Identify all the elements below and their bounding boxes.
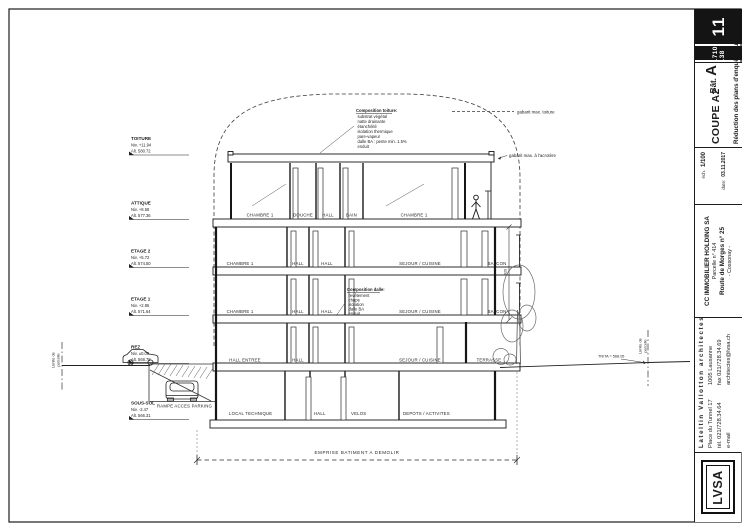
level-niv: Niv. +11.94 (131, 143, 152, 148)
room-label: HALL (292, 358, 304, 363)
room-label: CHAMBRE 1 (247, 213, 274, 218)
level-name: SOUS-SOL (131, 401, 155, 406)
parcel-limit-label-left: Limite de parcelle (52, 352, 61, 367)
emprise-label: EMPRISE BATIMENT A DEMOLIR (315, 450, 400, 455)
gabarit-toiture-label: gabarit max. toiture (517, 110, 555, 115)
height-dimension-label: 920 (504, 269, 508, 275)
scale-date-section: éch. 1/100 date: 03.11.2017 (695, 147, 742, 204)
room-label: BALCON (488, 309, 507, 314)
room-label: SEJOUR / CUISINE (399, 358, 441, 363)
limite-text: parcelle (57, 353, 61, 366)
level-alt: Alt. 566.31 (131, 413, 151, 418)
level-labels: TOITURE Niv. +11.94 Alt. 580.72 ATTIQUE … (131, 136, 155, 418)
room-label: HALL (321, 309, 333, 314)
architect-address: Place du Tunnel 17 (707, 385, 716, 448)
room-label: VELOS (351, 411, 366, 416)
composition-dalle: Composition dalle: revêtement chape isol… (336, 287, 385, 316)
level-name: ETAGE 2 (131, 249, 151, 254)
composition-toiture: Composition toiture: substrat végétal na… (320, 108, 407, 153)
parcel-number: Parcelle n° 414 (712, 243, 718, 280)
basement-room-labels: LOCAL TECHNIQUE HALL VELOS DEPOTS / ACTI… (157, 404, 450, 417)
date-label: date: (721, 180, 726, 190)
room-label: BALCON (488, 261, 507, 266)
room-label: CHAMBRE 1 (401, 213, 428, 218)
room-label: HALL (292, 309, 304, 314)
ramp-label: RAMPE ACCES PARKING (157, 404, 213, 409)
limite-text: parcelle (644, 339, 648, 352)
drawing-title: COUPE A2 (710, 88, 722, 144)
tree (501, 265, 536, 364)
architect-email: architectes@lvsa.ch (725, 322, 734, 385)
lvsa-logo: LVSA (701, 461, 735, 515)
level-alt: Alt. 568.78 (131, 357, 151, 362)
level-niv: Niv. +8.58 (131, 207, 150, 212)
level-alt: Alt. 580.72 (131, 149, 151, 154)
level-name: ETAGE 1 (131, 297, 151, 302)
room-label: SEJOUR / CUISINE (399, 261, 441, 266)
level-niv: Niv. +5.72 (131, 255, 150, 260)
level-name: ATTIQUE (131, 201, 151, 206)
level-niv: Niv. -2.47 (131, 407, 149, 412)
title-block: LVSA Lateltin Vallotton architectes SA P… (694, 9, 741, 522)
composition-dalle-title: Composition dalle: (347, 287, 385, 292)
date-value: 03.11.2017 (721, 152, 727, 177)
annotation-line: enduit (358, 144, 370, 149)
architect-email-label: e-mail (725, 385, 734, 448)
room-label: HALL ENTREE (229, 358, 260, 363)
job-number: 1710-138 (712, 44, 726, 63)
section-drawing: 920 EMPRISE BATIMENT A DEMOLIR TOITURE N… (0, 0, 750, 531)
level-alt: Alt. 577.36 (131, 213, 151, 218)
drawing-title-section: COUPE A2 Réduction des plans d'enquête d… (695, 62, 742, 147)
human-figure (472, 195, 481, 219)
building-letter: A (703, 65, 720, 76)
ramp-hatch (152, 364, 213, 379)
project-street: Route de Morges n° 25 (719, 227, 726, 295)
gabarit-acrotere-leader (498, 156, 507, 160)
room-label: SEJOUR / CUISINE (399, 309, 441, 314)
sheet-border (9, 9, 741, 522)
room-label: HALL (322, 213, 334, 218)
client-section: CC IMMOBILIER HOLDING SA Parcelle n° 414… (695, 204, 742, 317)
composition-toiture-title: Composition toiture: (356, 108, 397, 113)
terrain-level-label: TN/TA = 568.05 (598, 355, 624, 359)
attic-diagonals (252, 184, 424, 206)
project-city: - Cossonay - (727, 246, 733, 277)
level-niv: Niv. ±0.00 (131, 351, 150, 356)
room-label: CHAMBRE 1 (227, 261, 254, 266)
room-label: DEPOTS / ACTIVITES (403, 411, 450, 416)
sheet-number-box: 11 (695, 9, 742, 44)
level-niv: Niv. +2.86 (131, 303, 150, 308)
scale-label: éch. (701, 170, 706, 179)
level-markers (129, 152, 189, 420)
room-label: CHAMBRE 1 (227, 309, 254, 314)
client-name: CC IMMOBILIER HOLDING SA (704, 216, 711, 306)
car-parking (166, 381, 198, 401)
job-number-box: 1710-138 (695, 46, 742, 60)
room-label: HALL (321, 261, 333, 266)
level-alt: Alt. 571.64 (131, 309, 151, 314)
door-window-frames (291, 168, 488, 420)
level-name: REZ (131, 345, 140, 350)
architect-name: Lateltin Vallotton architectes SA (698, 322, 705, 448)
room-label: HALL (314, 411, 326, 416)
architect-fax: fax 021/728.34.69 (716, 322, 725, 385)
room-label: LOCAL TECHNIQUE (229, 411, 272, 416)
annotation-line: enduit (349, 311, 361, 316)
architect-city: 1005 Lausanne (707, 322, 716, 385)
building-label: Bât. A (703, 65, 720, 93)
logo-section: LVSA (695, 452, 741, 522)
level-alt: Alt. 574.50 (131, 261, 151, 266)
parcel-limit-label-right: Limite de parcelle (639, 338, 648, 353)
level-name: TOITURE (131, 136, 151, 141)
sheet-number: 11 (709, 17, 729, 37)
limite-text: Limite de (639, 338, 643, 353)
room-label: TERRASSE (477, 358, 502, 363)
architect-tel: tél. 021/728.34.64 (716, 385, 725, 448)
building-prefix: Bât. (709, 78, 718, 93)
drawing-sheet: 920 EMPRISE BATIMENT A DEMOLIR TOITURE N… (0, 0, 750, 531)
room-label: HALL (292, 261, 304, 266)
tn-leader (621, 359, 644, 363)
scale-value: 1/100 (701, 152, 707, 167)
limite-text: Limite de (52, 352, 56, 367)
room-label: BAIN (346, 213, 357, 218)
gabarit-acrotere-label: gabarit max. à l'acrotère (509, 153, 557, 158)
lvsa-logo-text: LVSA (706, 466, 730, 510)
room-label: DOUCHE (293, 213, 313, 218)
architect-section: Lateltin Vallotton architectes SA Place … (695, 317, 742, 452)
